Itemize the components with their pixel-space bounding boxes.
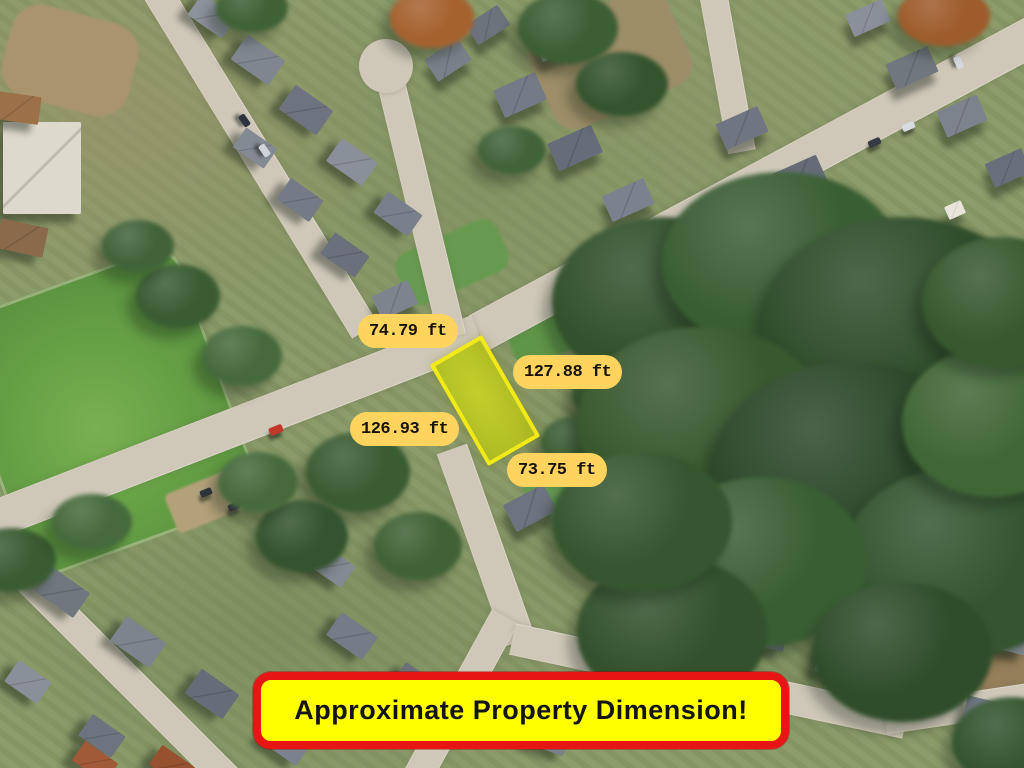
dimension-label-left: 126.93 ft (350, 412, 459, 446)
house-roof (326, 138, 378, 186)
house-roof (601, 178, 654, 222)
tree-canopy (898, 0, 990, 46)
house-roof (845, 0, 891, 37)
tree-canopy (52, 494, 132, 550)
house-roof (326, 612, 378, 660)
tree-canopy (374, 512, 462, 580)
caption-banner-text: Approximate Property Dimension! (294, 695, 748, 726)
house-roof (231, 35, 286, 86)
house-roof (3, 122, 81, 214)
dimension-label-bottom: 73.75 ft (507, 453, 607, 487)
house-roof (984, 148, 1024, 188)
map-backdrop (0, 0, 1024, 768)
tree-canopy (256, 500, 348, 572)
dimension-label-right: 127.88 ft (513, 355, 622, 389)
house-roof (185, 669, 240, 720)
tree-canopy (202, 326, 282, 386)
caption-banner: Approximate Property Dimension! (253, 672, 789, 749)
tree-canopy (218, 452, 298, 512)
house-roof (0, 218, 49, 257)
house-roof (944, 200, 966, 220)
tree-canopy (812, 582, 992, 722)
tree-canopy (478, 126, 546, 174)
house-roof (279, 85, 334, 136)
dimension-label-top: 74.79 ft (358, 314, 458, 348)
satellite-map: 74.79 ft 127.88 ft 126.93 ft 73.75 ft Ap… (0, 0, 1024, 768)
house-roof (4, 660, 52, 704)
tree-canopy (102, 220, 174, 272)
tree-canopy (390, 0, 474, 48)
tree-canopy (136, 264, 220, 328)
cul-de-sac (359, 39, 413, 93)
house-roof (547, 125, 603, 172)
house-roof (0, 91, 42, 125)
tree-canopy (576, 52, 668, 116)
